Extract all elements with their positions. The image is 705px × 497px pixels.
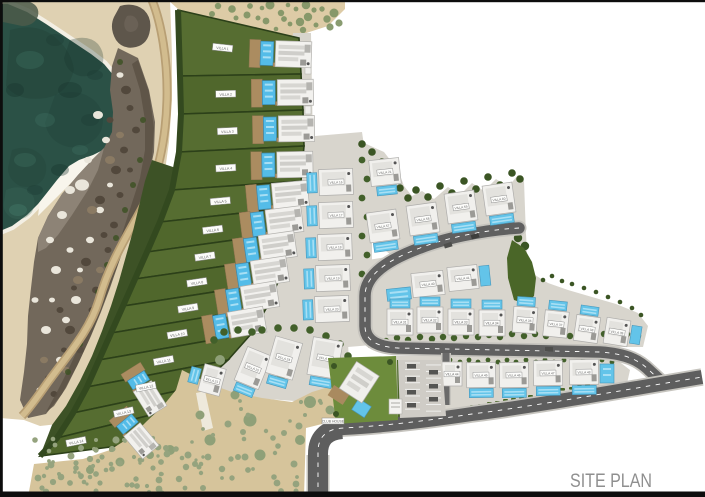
svg-text:VILLA 16: VILLA 16	[329, 180, 342, 184]
svg-text:VILLA 32: VILLA 32	[424, 319, 437, 323]
svg-text:VILLA 48: VILLA 48	[577, 370, 590, 374]
svg-text:VILLA 31: VILLA 31	[394, 321, 407, 325]
svg-text:CLUB HOUSE: CLUB HOUSE	[322, 420, 345, 424]
svg-text:VILLA 18: VILLA 18	[328, 245, 341, 249]
svg-text:VILLA 19: VILLA 19	[326, 276, 339, 280]
svg-text:VILLA 34: VILLA 34	[486, 322, 499, 326]
svg-text:VILLA 33: VILLA 33	[455, 321, 468, 325]
svg-text:VILLA 47: VILLA 47	[541, 371, 554, 375]
svg-text:VILLA 45: VILLA 45	[474, 373, 487, 377]
svg-text:VILLA 2: VILLA 2	[219, 93, 232, 97]
svg-text:SITE PLAN: SITE PLAN	[570, 471, 652, 492]
svg-text:VILLA 20: VILLA 20	[325, 307, 338, 311]
svg-text:VILLA 46: VILLA 46	[507, 373, 520, 377]
svg-text:VILLA 44: VILLA 44	[446, 373, 459, 377]
svg-text:VILLA 17: VILLA 17	[329, 213, 342, 217]
svg-text:VILLA 3: VILLA 3	[221, 130, 234, 135]
svg-text:VILLA 4: VILLA 4	[219, 166, 232, 171]
